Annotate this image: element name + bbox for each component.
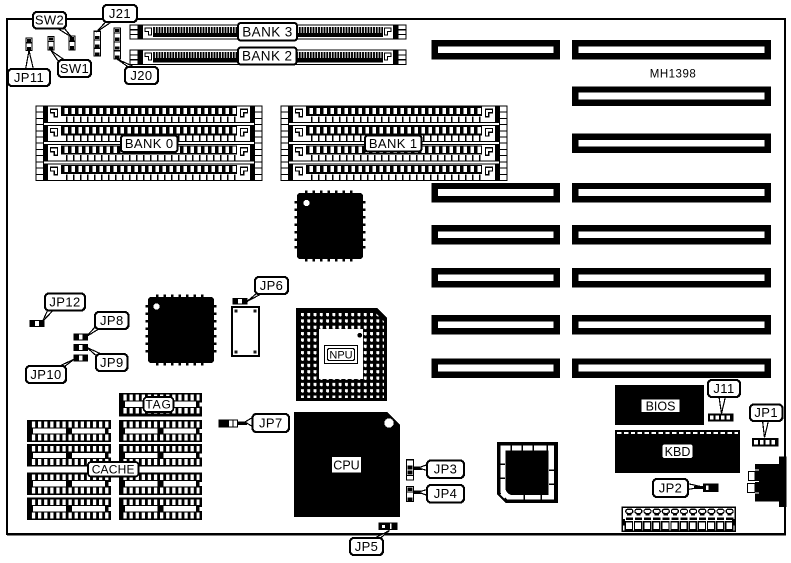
svg-text:KBD: KBD (665, 445, 691, 459)
svg-text:JP12: JP12 (49, 294, 80, 309)
svg-text:TAG: TAG (145, 398, 171, 412)
svg-text:JP11: JP11 (14, 70, 44, 85)
svg-text:SW1: SW1 (60, 61, 89, 76)
svg-text:SW2: SW2 (35, 13, 64, 28)
svg-text:MH1398: MH1398 (650, 69, 696, 81)
svg-text:JP4: JP4 (434, 486, 458, 501)
svg-text:BANK 3: BANK 3 (242, 24, 292, 39)
svg-text:BANK 1: BANK 1 (369, 136, 418, 151)
svg-text:JP3: JP3 (434, 462, 458, 477)
svg-text:JP9: JP9 (100, 355, 124, 370)
svg-text:JP10: JP10 (30, 367, 61, 382)
svg-text:NPU: NPU (329, 349, 352, 361)
svg-text:J21: J21 (109, 6, 131, 21)
svg-text:BANK 2: BANK 2 (242, 49, 292, 64)
svg-text:J11: J11 (713, 381, 734, 396)
svg-text:JP5: JP5 (355, 539, 379, 554)
svg-text:JP2: JP2 (659, 480, 683, 495)
svg-text:BIOS: BIOS (646, 399, 676, 413)
svg-text:JP7: JP7 (259, 415, 283, 430)
svg-text:CPU: CPU (333, 458, 359, 472)
svg-text:J20: J20 (130, 68, 152, 83)
svg-text:JP6: JP6 (260, 278, 284, 293)
svg-text:BANK 0: BANK 0 (125, 136, 174, 151)
svg-text:CACHE: CACHE (92, 462, 135, 476)
svg-text:JP8: JP8 (100, 313, 124, 328)
svg-text:JP1: JP1 (754, 405, 778, 420)
